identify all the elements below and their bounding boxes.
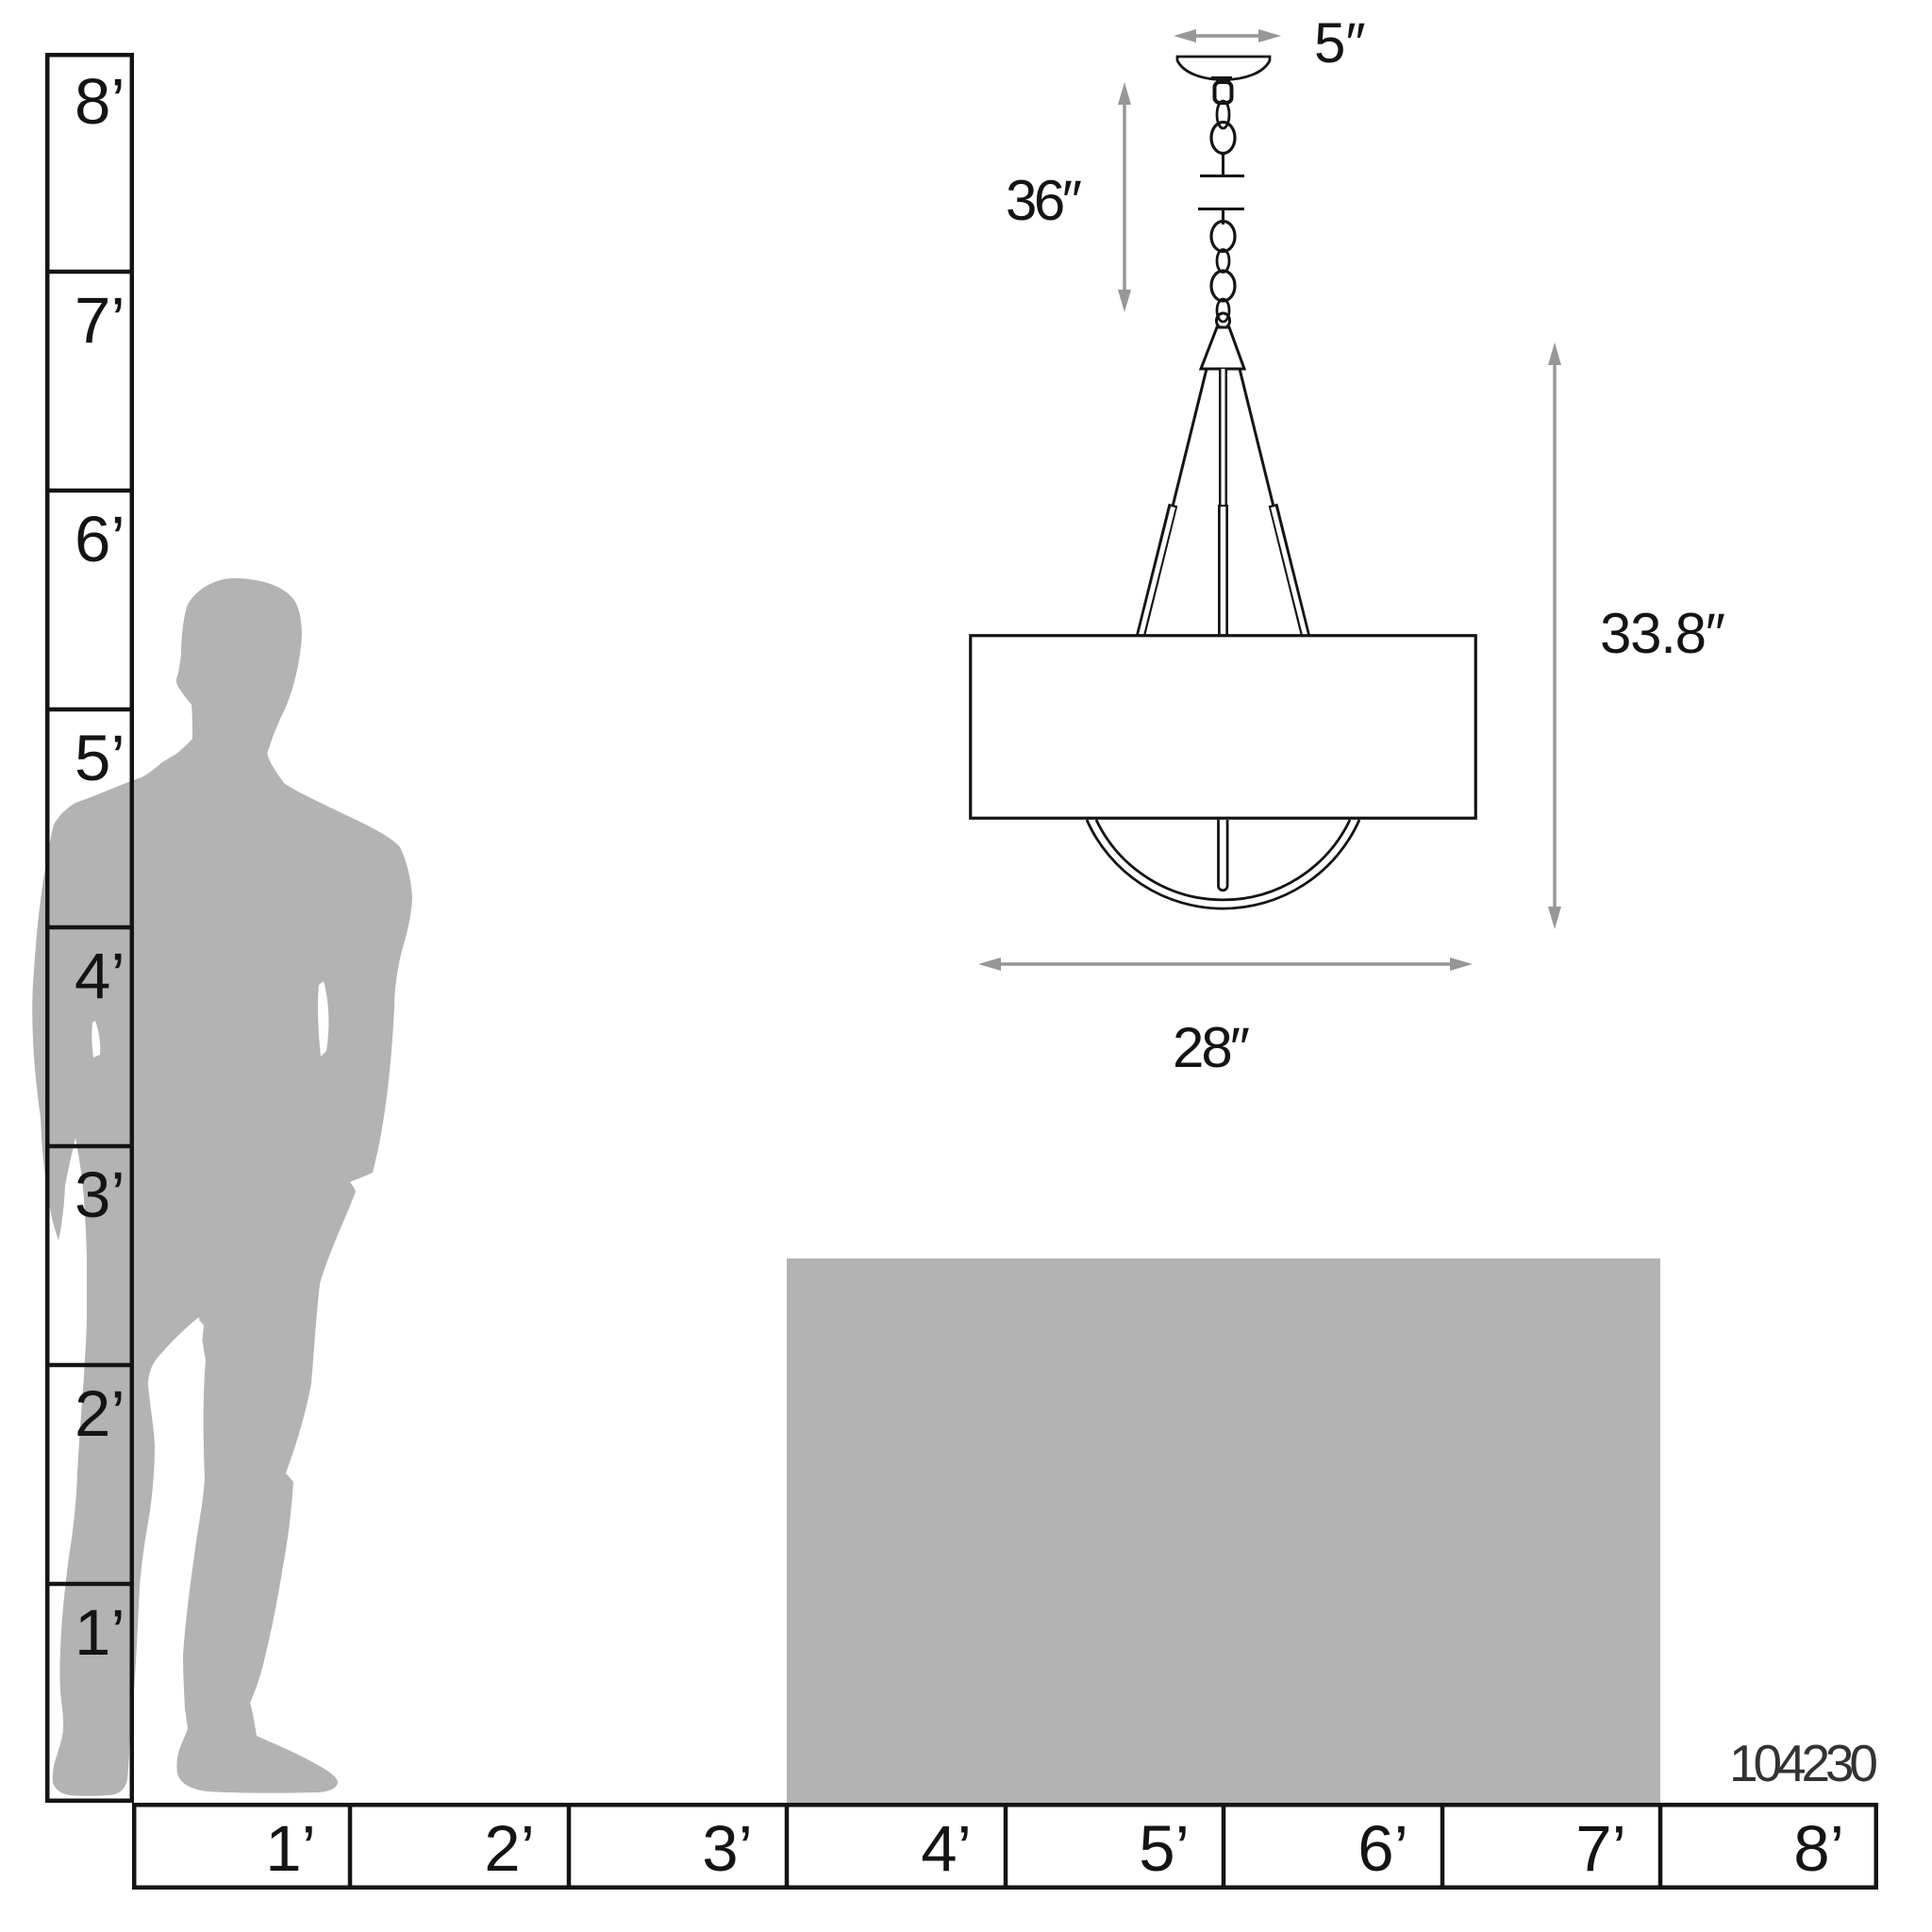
- svg-text:7’: 7’: [75, 284, 125, 357]
- svg-text:5″: 5″: [1314, 11, 1366, 75]
- svg-text:6’: 6’: [75, 503, 125, 575]
- svg-text:2’: 2’: [75, 1377, 125, 1450]
- svg-text:7’: 7’: [1575, 1812, 1626, 1885]
- svg-text:104230: 104230: [1729, 1734, 1878, 1792]
- svg-text:5’: 5’: [1139, 1812, 1190, 1885]
- svg-text:8’: 8’: [75, 65, 125, 138]
- svg-text:3’: 3’: [75, 1158, 125, 1231]
- svg-text:5’: 5’: [75, 722, 125, 794]
- svg-text:4’: 4’: [75, 940, 125, 1012]
- svg-text:2’: 2’: [484, 1812, 535, 1885]
- svg-text:36″: 36″: [1006, 169, 1082, 232]
- svg-text:1’: 1’: [265, 1812, 316, 1885]
- svg-text:3’: 3’: [702, 1812, 753, 1885]
- svg-text:8’: 8’: [1793, 1812, 1844, 1885]
- svg-text:33.8″: 33.8″: [1600, 602, 1725, 665]
- svg-text:6’: 6’: [1357, 1812, 1408, 1885]
- svg-text:4’: 4’: [921, 1812, 972, 1885]
- svg-text:28″: 28″: [1173, 1016, 1250, 1079]
- svg-text:1’: 1’: [75, 1596, 125, 1669]
